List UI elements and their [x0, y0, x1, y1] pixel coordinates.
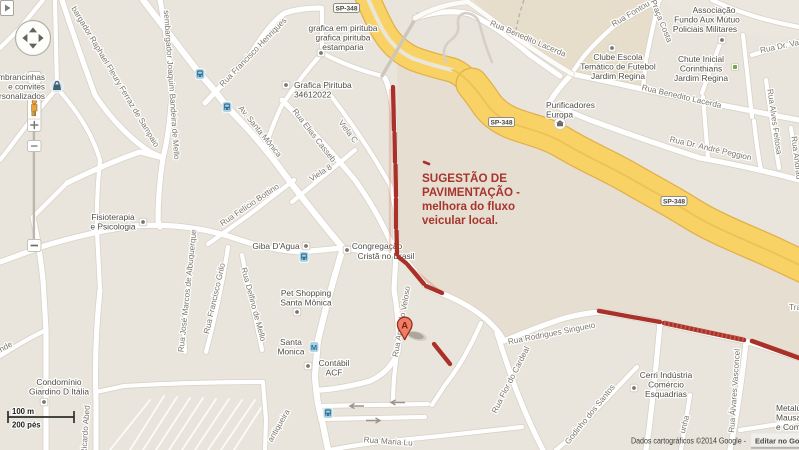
svg-text:grafica pirituba: grafica pirituba: [316, 33, 371, 43]
svg-text:e Psicologia: e Psicologia: [90, 222, 136, 232]
svg-text:Purificadores: Purificadores: [546, 100, 595, 110]
svg-text:34612022: 34612022: [294, 90, 332, 100]
svg-text:Temático de Futebol: Temático de Futebol: [580, 62, 656, 72]
svg-text:M: M: [311, 343, 317, 352]
svg-text:Monica: Monica: [278, 347, 305, 357]
svg-text:melhora do fluxo: melhora do fluxo: [422, 199, 515, 213]
svg-text:veicular local.: veicular local.: [422, 213, 498, 227]
svg-text:Condomínio: Condomínio: [36, 377, 82, 387]
svg-text:Pet Shopping: Pet Shopping: [281, 288, 332, 298]
svg-text:estamparia: estamparia: [322, 42, 364, 52]
svg-text:Comércio: Comércio: [648, 380, 684, 390]
svg-text:Corinthians: Corinthians: [680, 64, 722, 74]
svg-text:ACF: ACF: [326, 368, 343, 378]
svg-text:SP-348: SP-348: [491, 119, 513, 126]
svg-text:rsonalizados: rsonalizados: [0, 92, 45, 101]
svg-text:Grafica Pirituba: Grafica Pirituba: [294, 80, 352, 90]
svg-text:e convites: e convites: [8, 83, 45, 92]
svg-text:Jardim Regina: Jardim Regina: [674, 73, 728, 83]
svg-text:Chute Inicial: Chute Inicial: [678, 54, 724, 64]
svg-text:Cristã no Brasil: Cristã no Brasil: [358, 251, 415, 261]
svg-text:200 pés: 200 pés: [12, 421, 41, 430]
svg-text:Dados cartográficos ©2014 Goog: Dados cartográficos ©2014 Google -: [631, 437, 746, 446]
svg-text:SP-348: SP-348: [336, 5, 358, 12]
svg-text:Clube Escola: Clube Escola: [593, 52, 643, 62]
svg-text:Jardim Regina: Jardim Regina: [591, 71, 645, 81]
svg-text:100 m: 100 m: [12, 407, 34, 416]
svg-text:A: A: [401, 320, 408, 331]
svg-text:Tra: Tra: [789, 303, 799, 312]
svg-text:Fisioterapia: Fisioterapia: [91, 212, 135, 222]
svg-text:Mausa S: Mausa S: [776, 413, 799, 423]
svg-text:Giardino D Itália: Giardino D Itália: [29, 387, 89, 397]
svg-text:PAVIMENTAÇÃO -: PAVIMENTAÇÃO -: [422, 184, 520, 199]
svg-text:Policiais Militares: Policiais Militares: [673, 24, 737, 34]
svg-text:SP-348: SP-348: [663, 198, 685, 205]
svg-text:Editar no Goog: Editar no Goog: [755, 436, 799, 445]
svg-text:Fundo Aux Mútuo: Fundo Aux Mútuo: [674, 15, 740, 25]
svg-text:grafica em pirituba: grafica em pirituba: [309, 23, 378, 33]
svg-text:mbrancinhas: mbrancinhas: [0, 73, 45, 82]
svg-text:Contábil: Contábil: [319, 358, 350, 368]
svg-text:Esquadrias: Esquadrias: [645, 389, 687, 399]
svg-text:e Comérc: e Comérc: [776, 422, 799, 432]
svg-text:SUGESTÃO DE: SUGESTÃO DE: [422, 170, 507, 185]
svg-text:Metalúrgi: Metalúrgi: [776, 403, 799, 413]
svg-text:Santa: Santa: [280, 337, 302, 347]
svg-text:Giba D'Agua: Giba D'Agua: [252, 241, 300, 251]
svg-text:Associação: Associação: [693, 5, 736, 15]
svg-text:Santa Mônica: Santa Mônica: [280, 298, 332, 308]
svg-text:Cerri Indústria: Cerri Indústria: [640, 370, 693, 380]
